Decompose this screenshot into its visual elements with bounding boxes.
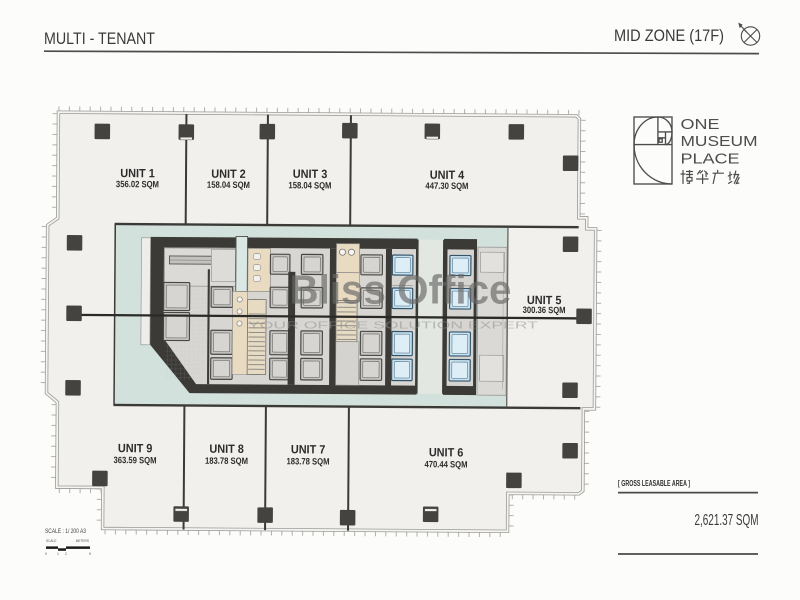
svg-text:158.04 SQM: 158.04 SQM <box>288 180 331 190</box>
svg-text:[ GROSS LEASABLE AREA ]: [ GROSS LEASABLE AREA ] <box>618 479 690 488</box>
svg-text:MUSEUM: MUSEUM <box>681 133 758 150</box>
svg-text:5: 5 <box>89 552 91 556</box>
svg-text:300.36 SQM: 300.36 SQM <box>523 305 566 315</box>
svg-text:1: 1 <box>57 552 59 556</box>
svg-text:UNIT 8: UNIT 8 <box>209 442 244 456</box>
svg-text:METERS: METERS <box>76 539 89 543</box>
svg-text:SCALE : 1/ 200 A3: SCALE : 1/ 200 A3 <box>45 528 86 535</box>
svg-text:2,621.37 SQM: 2,621.37 SQM <box>695 512 759 529</box>
svg-text:ONE: ONE <box>681 116 720 133</box>
svg-text:Bliss Office: Bliss Office <box>290 267 512 313</box>
svg-text:356.02 SQM: 356.02 SQM <box>116 179 159 189</box>
svg-text:YOUR OFFICE SOLUTION EXPERT: YOUR OFFICE SOLUTION EXPERT <box>248 321 538 332</box>
svg-text:UNIT 3: UNIT 3 <box>293 167 328 181</box>
svg-text:183.78 SQM: 183.78 SQM <box>205 456 248 466</box>
svg-text:UNIT 6: UNIT 6 <box>429 445 464 459</box>
svg-text:183.78 SQM: 183.78 SQM <box>286 456 329 466</box>
svg-text:SCALE: SCALE <box>46 539 56 543</box>
svg-text:2: 2 <box>65 552 67 556</box>
svg-text:363.59 SQM: 363.59 SQM <box>113 455 156 465</box>
svg-text:447.30 SQM: 447.30 SQM <box>425 181 468 191</box>
svg-text:158.04 SQM: 158.04 SQM <box>207 180 250 190</box>
svg-text:UNIT 7: UNIT 7 <box>291 442 326 456</box>
svg-text:0: 0 <box>45 552 47 556</box>
svg-text:MULTI - TENANT: MULTI - TENANT <box>44 30 155 48</box>
svg-text:UNIT 9: UNIT 9 <box>118 441 153 455</box>
svg-text:470.44 SQM: 470.44 SQM <box>424 459 467 469</box>
svg-text:MID ZONE (17F): MID ZONE (17F) <box>614 27 724 45</box>
svg-text:PLACE: PLACE <box>681 151 740 168</box>
